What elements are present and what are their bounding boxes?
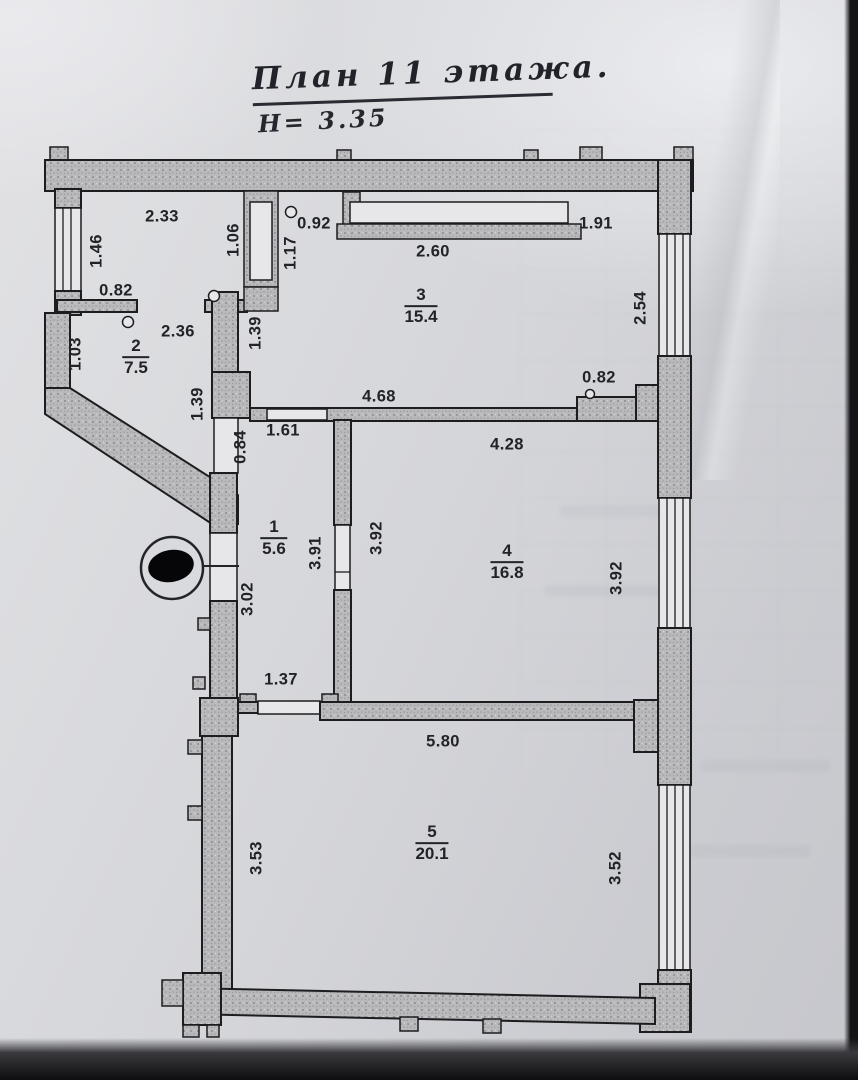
room-label: 5 20.1 xyxy=(415,823,448,863)
dimension-label: 0.84 xyxy=(232,430,251,464)
dimension-label: 3.02 xyxy=(239,582,258,616)
duct-shaft xyxy=(244,191,278,311)
dimension-label: 1.39 xyxy=(247,316,266,350)
dimension-label: 0.82 xyxy=(582,369,616,388)
dimension-label: 1.17 xyxy=(282,236,301,270)
wall-room4-left xyxy=(334,420,351,712)
dimension-label: 0.92 xyxy=(297,215,331,234)
dimension-label: 0.82 xyxy=(99,282,133,301)
photo-edge-right xyxy=(844,0,858,1080)
dimension-label: 3.91 xyxy=(307,536,326,570)
dimension-label: 1.91 xyxy=(579,215,613,234)
wall-room5-left xyxy=(188,736,232,990)
dimension-label: 1.61 xyxy=(266,422,300,441)
dimension-label: 3.52 xyxy=(607,851,626,885)
dimension-label: 3.92 xyxy=(608,561,627,595)
outer-wall-bottom xyxy=(162,973,655,1037)
dimension-label: 2.60 xyxy=(416,243,450,262)
floorplan-photo: .w{fill:url(#wp);stroke:#1d1d20;stroke-w… xyxy=(0,0,858,1080)
room-label: 1 5.6 xyxy=(260,518,287,558)
builtin-closet xyxy=(337,192,581,239)
wall-room3-bottom xyxy=(250,385,662,421)
dimension-label: 1.39 xyxy=(189,387,208,421)
dimension-label: 2.36 xyxy=(161,323,195,342)
dimension-label: 1.03 xyxy=(67,337,86,371)
dimension-label: 1.46 xyxy=(88,234,107,268)
room-label: 3 15.4 xyxy=(404,286,437,326)
floorplan-drawing: .w{fill:url(#wp);stroke:#1d1d20;stroke-w… xyxy=(0,0,858,1080)
outer-wall-top xyxy=(45,147,693,191)
room-label: 2 7.5 xyxy=(122,337,149,377)
dimension-label: 4.28 xyxy=(490,436,524,455)
room-label: 4 16.8 xyxy=(490,542,523,582)
dimension-label: 4.68 xyxy=(362,388,396,407)
photo-edge-bottom xyxy=(0,1038,858,1080)
dimension-label: 1.37 xyxy=(264,671,298,690)
dimension-label: 5.80 xyxy=(426,733,460,752)
dimension-label: 2.33 xyxy=(145,208,179,227)
wall-room5-top xyxy=(238,694,682,752)
dimension-label: 2.54 xyxy=(632,291,651,325)
dimension-label: 1.06 xyxy=(225,223,244,257)
dimension-label: 3.53 xyxy=(248,841,267,875)
dimension-label: 3.92 xyxy=(368,521,387,555)
